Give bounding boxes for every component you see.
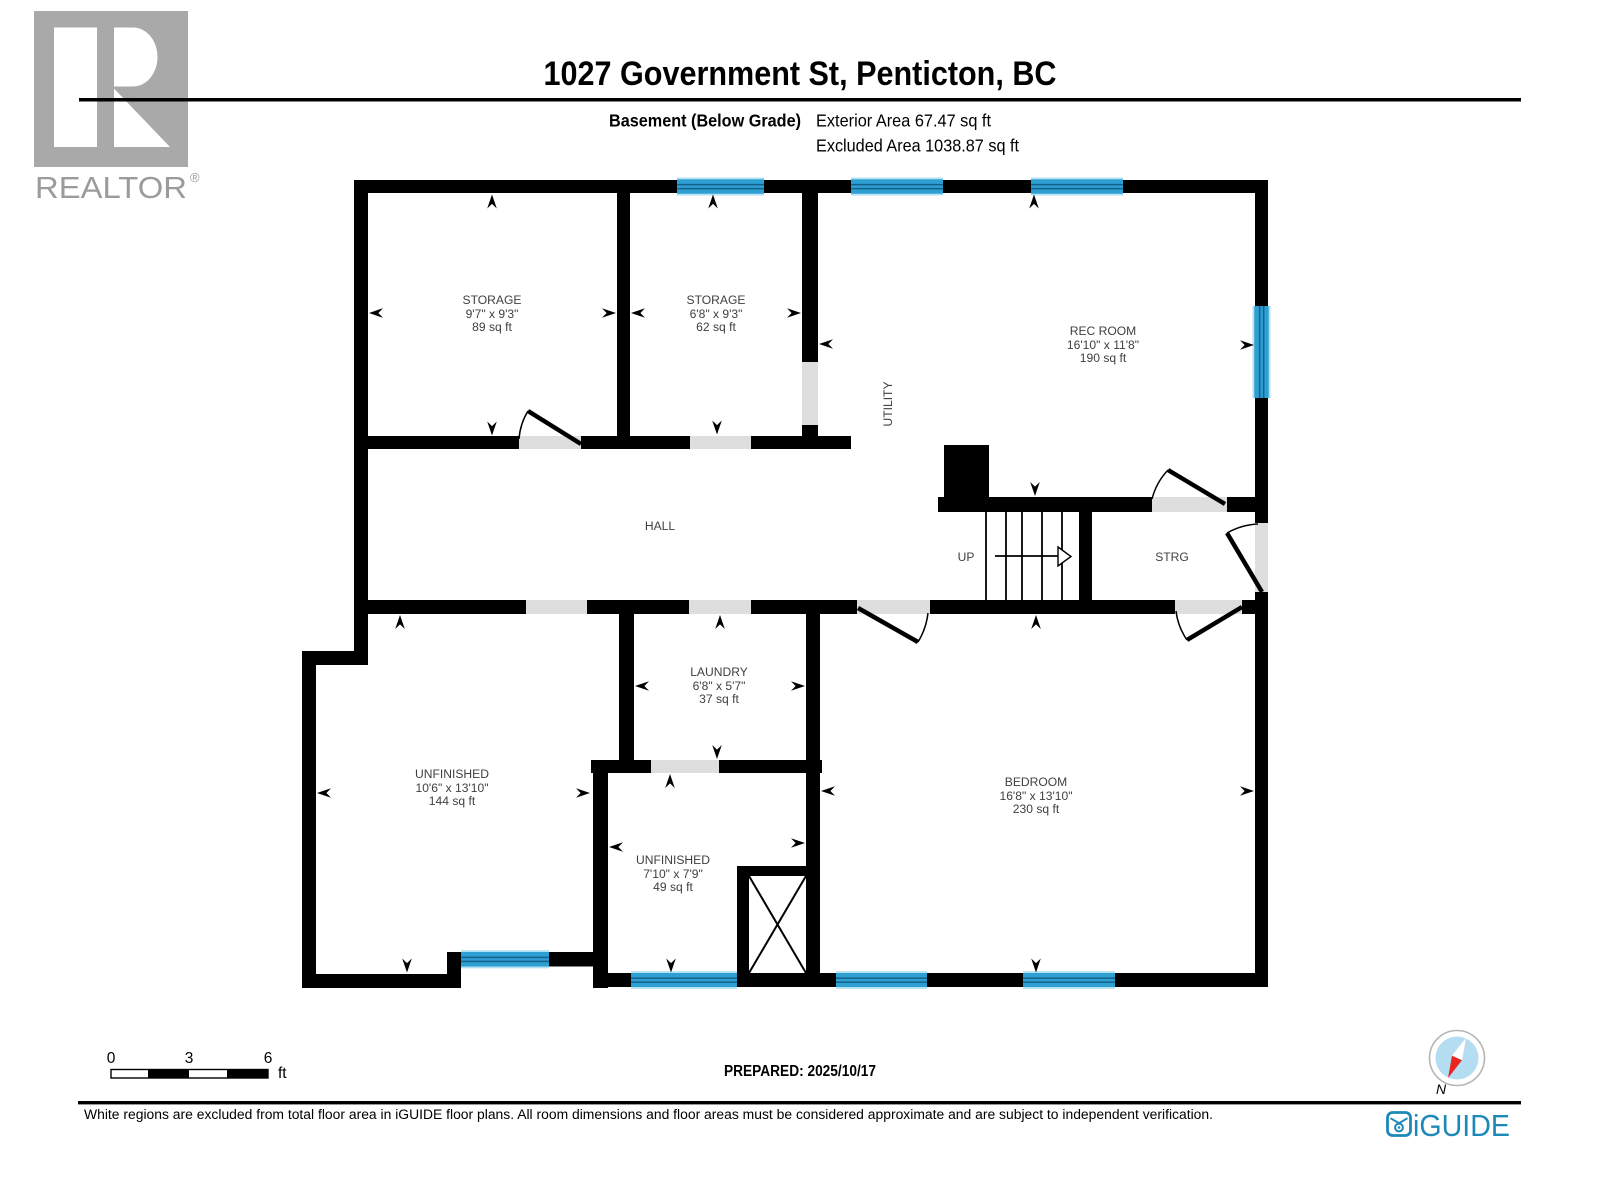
svg-text:6: 6: [264, 1050, 273, 1067]
svg-text:144 sq ft: 144 sq ft: [429, 794, 476, 808]
svg-text:16'8" x 13'10": 16'8" x 13'10": [999, 789, 1072, 803]
svg-text:7'10" x 7'9": 7'10" x 7'9": [643, 867, 703, 881]
svg-text:ft: ft: [278, 1065, 287, 1082]
svg-text:Exterior Area 67.47 sq ft: Exterior Area 67.47 sq ft: [816, 111, 991, 131]
svg-text:190 sq ft: 190 sq ft: [1080, 351, 1127, 365]
svg-text:3: 3: [185, 1050, 194, 1067]
svg-text:230 sq ft: 230 sq ft: [1013, 802, 1060, 816]
svg-text:49 sq ft: 49 sq ft: [653, 880, 693, 894]
svg-text:Basement (Below Grade): Basement (Below Grade): [609, 111, 801, 131]
svg-text:STORAGE: STORAGE: [463, 293, 522, 307]
svg-text:UTILITY: UTILITY: [881, 381, 895, 426]
svg-text:STRG: STRG: [1155, 550, 1189, 564]
svg-text:STORAGE: STORAGE: [687, 293, 746, 307]
svg-text:BEDROOM: BEDROOM: [1005, 775, 1068, 789]
svg-text:REALTOR: REALTOR: [35, 171, 187, 205]
svg-text:PREPARED: 2025/10/17: PREPARED: 2025/10/17: [724, 1063, 876, 1080]
svg-text:10'6" x 13'10": 10'6" x 13'10": [415, 781, 488, 795]
svg-text:0: 0: [107, 1050, 116, 1067]
svg-text:iGUIDE: iGUIDE: [1413, 1108, 1510, 1143]
svg-text:UNFINISHED: UNFINISHED: [636, 853, 710, 867]
svg-text:1027 Government St, Penticton,: 1027 Government St, Penticton, BC: [544, 55, 1057, 93]
svg-text:LAUNDRY: LAUNDRY: [690, 665, 748, 679]
svg-text:White regions are excluded fro: White regions are excluded from total fl…: [84, 1107, 1213, 1122]
svg-text:6'8" x 5'7": 6'8" x 5'7": [693, 679, 746, 693]
svg-text:89 sq ft: 89 sq ft: [472, 320, 512, 334]
svg-text:UP: UP: [958, 550, 975, 564]
svg-text:9'7" x 9'3": 9'7" x 9'3": [466, 307, 519, 321]
svg-text:HALL: HALL: [645, 519, 676, 533]
svg-text:62 sq ft: 62 sq ft: [696, 320, 736, 334]
svg-text:N: N: [1436, 1081, 1447, 1097]
svg-text:6'8" x 9'3": 6'8" x 9'3": [690, 307, 743, 321]
svg-text:16'10" x 11'8": 16'10" x 11'8": [1067, 338, 1139, 352]
svg-text:REC ROOM: REC ROOM: [1070, 324, 1137, 338]
svg-text:Excluded Area 1038.87 sq ft: Excluded Area 1038.87 sq ft: [816, 136, 1019, 156]
svg-text:37 sq ft: 37 sq ft: [699, 692, 739, 706]
svg-text:®: ®: [190, 170, 200, 185]
svg-text:UNFINISHED: UNFINISHED: [415, 767, 489, 781]
